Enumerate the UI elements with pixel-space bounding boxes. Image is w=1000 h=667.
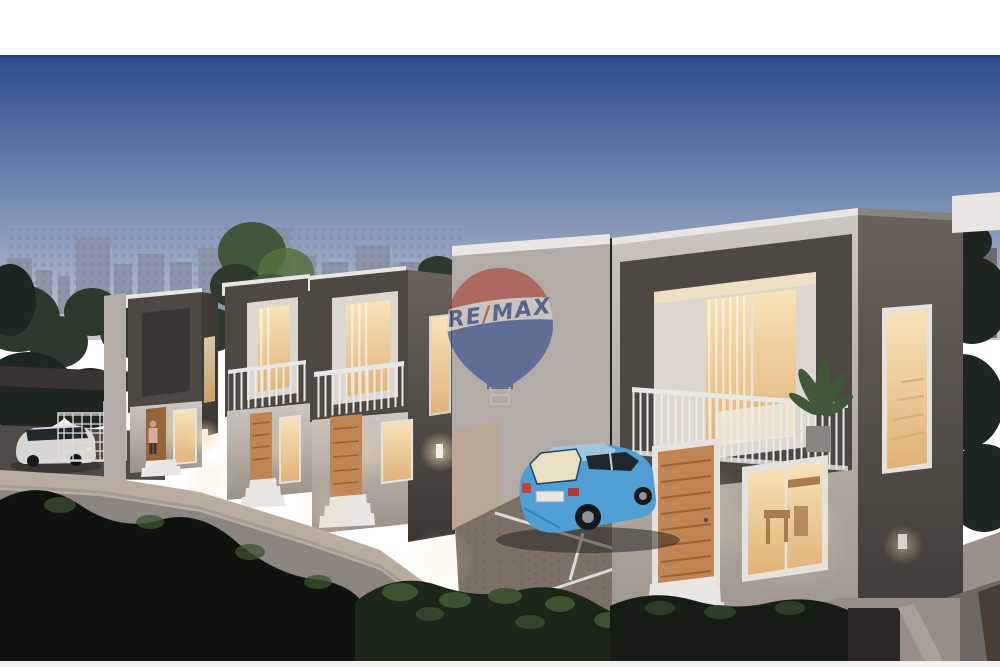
car-shadow <box>496 527 680 553</box>
lit-slot-window <box>204 336 215 403</box>
wall-sconce <box>202 429 208 441</box>
top-margin <box>0 0 1000 55</box>
license-plate <box>536 491 564 502</box>
sky-top-edge <box>0 55 1000 58</box>
door-handle <box>704 518 708 522</box>
balcony-recess <box>142 308 190 397</box>
taillight-right <box>568 488 579 496</box>
lit-window <box>280 416 300 483</box>
plant-pot <box>806 426 830 452</box>
wall-sconce <box>898 534 907 549</box>
torso <box>149 428 158 443</box>
wall-sconce <box>436 444 443 458</box>
lit-stair-window <box>887 309 927 469</box>
head <box>150 421 157 428</box>
lit-slot-window <box>430 315 450 415</box>
property-render-photo: RE/MAX <box>0 0 1000 667</box>
neighbor-parapet <box>952 192 1000 233</box>
dark-recess <box>848 608 900 667</box>
lit-window <box>382 420 412 483</box>
bottom-margin <box>0 661 1000 667</box>
taillight-left <box>522 483 531 493</box>
entry-steps <box>141 459 181 477</box>
